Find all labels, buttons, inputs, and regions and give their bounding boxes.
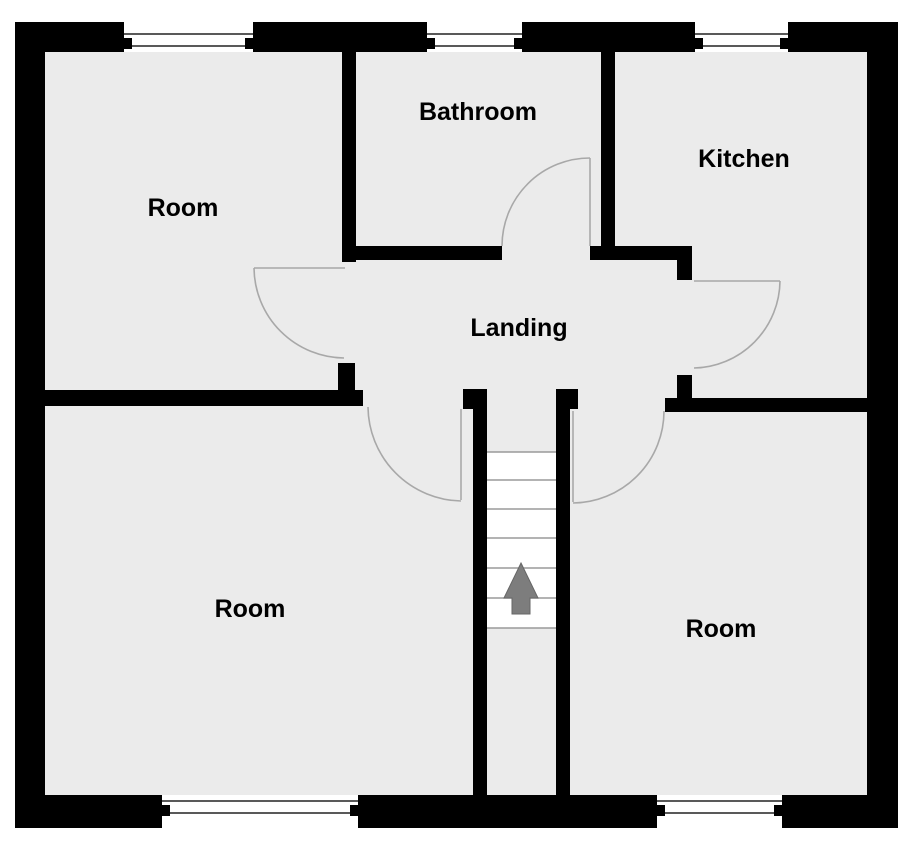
wall xyxy=(615,246,692,260)
window-jamb xyxy=(774,805,782,816)
window-jamb xyxy=(124,38,132,49)
window-room-top-left xyxy=(124,22,253,52)
wall xyxy=(473,390,487,795)
wall xyxy=(522,22,695,52)
window-jamb xyxy=(245,38,253,49)
wall xyxy=(15,22,45,828)
wall xyxy=(342,246,502,260)
wall xyxy=(677,375,692,398)
label-bathroom: Bathroom xyxy=(419,98,537,126)
label-room-bottom-right: Room xyxy=(686,615,757,643)
window-jamb xyxy=(350,805,358,816)
floor-plan: RoomBathroomKitchenLandingRoomRoom xyxy=(0,0,920,864)
wall xyxy=(867,22,898,828)
window-opening xyxy=(124,22,253,52)
window-room-bottom-right xyxy=(657,795,782,828)
label-room-bottom-left: Room xyxy=(215,595,286,623)
window-kitchen xyxy=(695,22,788,52)
window-jamb xyxy=(514,38,522,49)
wall xyxy=(782,795,898,828)
label-landing: Landing xyxy=(470,314,567,342)
window-jamb xyxy=(427,38,435,49)
wall xyxy=(665,398,867,412)
window-jamb xyxy=(657,805,665,816)
window-jamb xyxy=(162,805,170,816)
window-opening xyxy=(162,795,358,828)
label-room-top-left: Room xyxy=(148,194,219,222)
wall xyxy=(253,22,427,52)
wall xyxy=(601,52,615,260)
wall xyxy=(677,260,692,280)
wall xyxy=(338,363,355,390)
wall xyxy=(15,795,162,828)
floor-plan-svg: RoomBathroomKitchenLandingRoomRoom xyxy=(0,0,920,864)
window-opening xyxy=(657,795,782,828)
floor-area xyxy=(15,22,898,828)
window-jamb xyxy=(695,38,703,49)
label-kitchen: Kitchen xyxy=(698,145,790,173)
wall xyxy=(556,390,570,795)
window-bathroom xyxy=(427,22,522,52)
window-jamb xyxy=(780,38,788,49)
window-opening xyxy=(695,22,788,52)
wall xyxy=(590,246,615,260)
wall xyxy=(45,390,363,406)
wall xyxy=(342,52,356,262)
window-opening xyxy=(427,22,522,52)
window-room-bottom-left xyxy=(162,795,358,828)
wall xyxy=(358,795,657,828)
